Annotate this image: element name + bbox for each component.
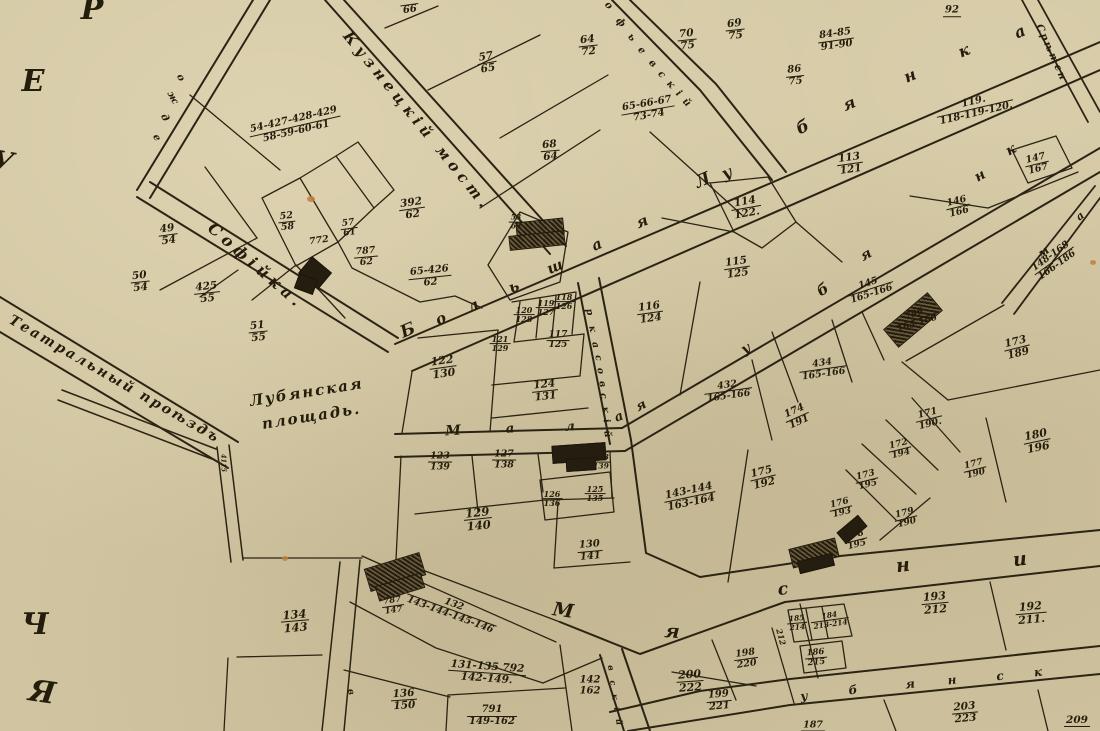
parcel-number-new: 143 bbox=[281, 619, 310, 634]
parcel-boundary-line bbox=[580, 334, 584, 376]
street-name-letter: М bbox=[445, 424, 461, 439]
street-name-letter: б bbox=[848, 684, 858, 697]
parcel-boundary-line bbox=[336, 142, 394, 208]
parcel-number-old: 121 bbox=[490, 335, 511, 343]
street-edge-line bbox=[625, 172, 1100, 451]
parcel-boundary-line bbox=[322, 562, 340, 731]
parcel-number-new: 139 bbox=[591, 462, 611, 471]
parcel-boundary-line bbox=[229, 445, 243, 560]
parcel-boundary-line bbox=[884, 700, 896, 731]
street-edge-line bbox=[631, 440, 1100, 577]
street-name-letter: Ч bbox=[21, 610, 48, 640]
parcel-number: 186215 bbox=[804, 648, 827, 669]
parcel-number-old: 125 bbox=[585, 485, 606, 493]
parcel-number: 116124 bbox=[636, 300, 665, 326]
street-edge-line bbox=[137, 0, 253, 190]
parcel-number: 5155 bbox=[248, 320, 269, 345]
parcel-number-new: 75 bbox=[786, 75, 805, 88]
parcel-number: 193212 bbox=[921, 590, 950, 616]
parcel-number: 129140 bbox=[463, 505, 493, 533]
parcel-number: 791149-162 bbox=[467, 705, 517, 727]
parcel-number-old: 791 bbox=[467, 705, 517, 716]
parcel-number-new: 149-162 bbox=[467, 716, 517, 728]
parcel-number-new: 214 bbox=[787, 622, 807, 633]
parcel-number: 6975 bbox=[725, 18, 746, 43]
parcel-boundary-line bbox=[554, 502, 558, 568]
parcel-number: 142162 bbox=[578, 676, 603, 697]
parcel-boundary-line bbox=[492, 408, 588, 418]
parcel-number-new: 75 bbox=[678, 39, 698, 53]
parcel-number-new bbox=[1064, 726, 1090, 729]
parcel-number: 180196 bbox=[1021, 426, 1052, 455]
parcel-number: 117125 bbox=[547, 331, 570, 351]
parcel-boundary-line bbox=[344, 560, 360, 731]
parcel-boundary-line bbox=[862, 312, 884, 360]
parcel-number-old: 120 bbox=[514, 306, 535, 314]
parcel-boundary-line bbox=[224, 658, 228, 731]
parcel-number: 5761 bbox=[339, 218, 358, 240]
street-name-letter: к bbox=[609, 694, 618, 701]
parcel-number-old: 187 bbox=[801, 721, 825, 731]
street-name-letter: М bbox=[551, 600, 574, 622]
parcel-boundary-line bbox=[448, 688, 565, 695]
parcel-number: 6472 bbox=[578, 34, 599, 59]
street-name-letter: й bbox=[613, 718, 622, 725]
parcel-boundary-line bbox=[418, 330, 498, 338]
parcel-number-old: 117 bbox=[547, 331, 570, 340]
street-edge-line bbox=[630, 0, 786, 172]
parcel-boundary-line bbox=[402, 372, 412, 433]
parcel-number-new: 72 bbox=[579, 45, 599, 59]
parcel-number-new: 54 bbox=[159, 233, 179, 247]
parcel-number: 118126 bbox=[554, 293, 575, 311]
parcel-number-old: 209 bbox=[1064, 715, 1090, 726]
street-name-letter: Я bbox=[27, 676, 57, 709]
parcel-number: 199221 bbox=[706, 689, 733, 713]
parcel-number-new: 64 bbox=[541, 150, 561, 164]
parcel-number-new: 58 bbox=[278, 221, 296, 234]
paper-stain bbox=[1090, 260, 1096, 265]
street-name-letter: с bbox=[996, 670, 1005, 683]
parcel-boundary-line bbox=[772, 332, 798, 402]
parcel-number-new: 141 bbox=[578, 549, 604, 563]
parcel-number: 5765 bbox=[476, 50, 498, 76]
parcel-number-new: 129 bbox=[490, 344, 511, 353]
parcel-boundary-line bbox=[262, 178, 338, 266]
parcel-boundary-line bbox=[554, 562, 630, 568]
parcel-boundary-line bbox=[1038, 690, 1048, 731]
parcel-number: 124131 bbox=[531, 378, 559, 404]
parcel-number: 127138 bbox=[492, 450, 516, 471]
street-name-letter: к bbox=[1033, 666, 1043, 679]
parcel-number: 115125 bbox=[723, 255, 752, 281]
parcel-boundary-line bbox=[986, 418, 1006, 502]
street-name-letter: в bbox=[605, 665, 614, 672]
parcel-number: 6864 bbox=[540, 139, 561, 164]
parcel-number-new: 221 bbox=[707, 699, 733, 713]
parcel-number: 113121 bbox=[836, 151, 865, 177]
parcel-number-new: 223 bbox=[952, 711, 979, 725]
street-name-letter: я bbox=[664, 622, 680, 642]
parcel-number-new: 125 bbox=[547, 341, 570, 351]
parcel-number: 78762 bbox=[353, 246, 379, 269]
street-name-letter: Р bbox=[81, 0, 104, 25]
parcel-number-new: 128 bbox=[514, 315, 535, 324]
parcel-boundary-line bbox=[988, 172, 1078, 208]
parcel-number-new: 140 bbox=[464, 517, 493, 533]
parcel-boundary-line bbox=[990, 582, 1006, 650]
street-name-letter: а bbox=[505, 422, 514, 435]
parcel-number: 66 bbox=[400, 3, 419, 17]
street-edge-line bbox=[0, 332, 228, 468]
parcel-number-new: 222 bbox=[677, 680, 705, 694]
street-name-letter: и bbox=[1012, 550, 1028, 571]
parcel-boundary-line bbox=[902, 362, 948, 400]
parcel-number: 120128 bbox=[514, 306, 535, 324]
parcel-number: 136150 bbox=[390, 688, 417, 713]
parcel-number: 65-42662 bbox=[407, 264, 452, 290]
parcel-number: 5363 bbox=[509, 214, 523, 231]
parcel-number: 8675 bbox=[785, 64, 805, 88]
parcel-number: 122130 bbox=[428, 353, 458, 381]
parcel-number-new: 162 bbox=[578, 686, 603, 697]
street-name-letter: с bbox=[777, 581, 789, 599]
street-name-letter: л bbox=[565, 420, 576, 434]
parcel-number-old: 123 bbox=[428, 452, 452, 462]
parcel-number: 4954 bbox=[157, 222, 179, 247]
parcel-number: 192211. bbox=[1015, 600, 1048, 627]
parcel-number: 4115 bbox=[220, 452, 227, 474]
parcel-number: 92 bbox=[943, 5, 961, 19]
parcel-boundary-line bbox=[796, 222, 842, 262]
parcel-boundary-line bbox=[472, 456, 478, 512]
parcel-number-new: 211. bbox=[1016, 611, 1048, 626]
parcel-number: 185214 bbox=[786, 614, 807, 632]
parcel-number-old: 126 bbox=[542, 490, 563, 498]
street-name-letter: я bbox=[905, 677, 916, 690]
parcel-number-old: 127 bbox=[492, 450, 516, 460]
parcel-boundary-line bbox=[446, 695, 448, 731]
parcel-number: 121129 bbox=[490, 335, 511, 353]
parcel-number-new bbox=[943, 16, 961, 19]
parcel-number-new: 66 bbox=[400, 3, 419, 17]
parcel-number-new: 126 bbox=[554, 302, 575, 311]
parcel-number: 128139 bbox=[591, 454, 611, 471]
street-name-letter: Е bbox=[22, 67, 45, 97]
parcel-number-old: 128 bbox=[591, 454, 611, 462]
street-edge-line bbox=[395, 42, 1100, 344]
paper-stain bbox=[282, 556, 288, 561]
parcel-number: 134143 bbox=[280, 607, 310, 634]
parcel-number: 187 bbox=[801, 721, 825, 731]
parcel-number-old: 53 bbox=[509, 214, 523, 222]
parcel-number: 198220 bbox=[733, 647, 760, 671]
parcel-number-new: 62 bbox=[354, 255, 379, 268]
parcel-boundary-line bbox=[752, 360, 772, 440]
street-name-letter: н bbox=[947, 674, 957, 687]
parcel-number: 42555 bbox=[193, 280, 221, 306]
parcel-number-old: 118 bbox=[554, 293, 575, 301]
parcel-number-new: 75 bbox=[726, 29, 746, 43]
parcel-boundary-line bbox=[680, 282, 700, 395]
parcel-boundary-line bbox=[396, 456, 401, 560]
parcel-boundary-line bbox=[728, 450, 748, 582]
parcel-number-old: 142 bbox=[578, 676, 603, 687]
parcel-number: 200222 bbox=[676, 668, 705, 694]
street-name-letter: н bbox=[895, 556, 911, 577]
parcel-number-new: 212 bbox=[922, 601, 950, 616]
parcel-number-new: 55 bbox=[249, 331, 269, 345]
parcel-number-new: 138 bbox=[492, 460, 516, 471]
street-edge-line bbox=[622, 649, 650, 731]
parcel-number: 5258 bbox=[277, 211, 296, 234]
parcel-boundary-line bbox=[948, 370, 1100, 400]
parcel-number: 209 bbox=[1064, 715, 1090, 729]
parcel-number-new: 54 bbox=[131, 281, 151, 295]
street-edge-line bbox=[344, 0, 566, 246]
parcel-number: 39262 bbox=[398, 196, 427, 222]
parcel-number-new: 139 bbox=[428, 462, 452, 473]
parcel-number: 125135 bbox=[585, 485, 606, 503]
parcel-number: 126136 bbox=[542, 490, 563, 508]
historical-map: 54-427-428-42958-59-60-61665765647270756… bbox=[0, 0, 1100, 731]
parcel-number-new: 63 bbox=[509, 222, 523, 231]
parcel-number: 5054 bbox=[130, 270, 151, 295]
parcel-boundary-line bbox=[500, 75, 608, 138]
parcel-number: 130141 bbox=[577, 539, 604, 563]
street-edge-line bbox=[1002, 186, 1095, 303]
parcel-number-new: 135 bbox=[585, 494, 606, 503]
parcel-boundary-line bbox=[237, 655, 322, 657]
parcel-number: 787147 bbox=[381, 595, 405, 617]
paper-stain bbox=[307, 196, 315, 202]
parcel-number-old: 92 bbox=[943, 5, 961, 16]
parcel-number-old: 4115 bbox=[220, 452, 227, 474]
street-name-letter: у bbox=[800, 690, 809, 703]
parcel-number: 203223 bbox=[951, 700, 979, 725]
parcel-number-new: 215 bbox=[805, 657, 828, 669]
parcel-number: 123139 bbox=[428, 452, 452, 473]
parcel-number-new: 136 bbox=[542, 499, 563, 508]
parcel-number: 7075 bbox=[677, 28, 698, 53]
parcel-number-new: 150 bbox=[391, 699, 418, 713]
